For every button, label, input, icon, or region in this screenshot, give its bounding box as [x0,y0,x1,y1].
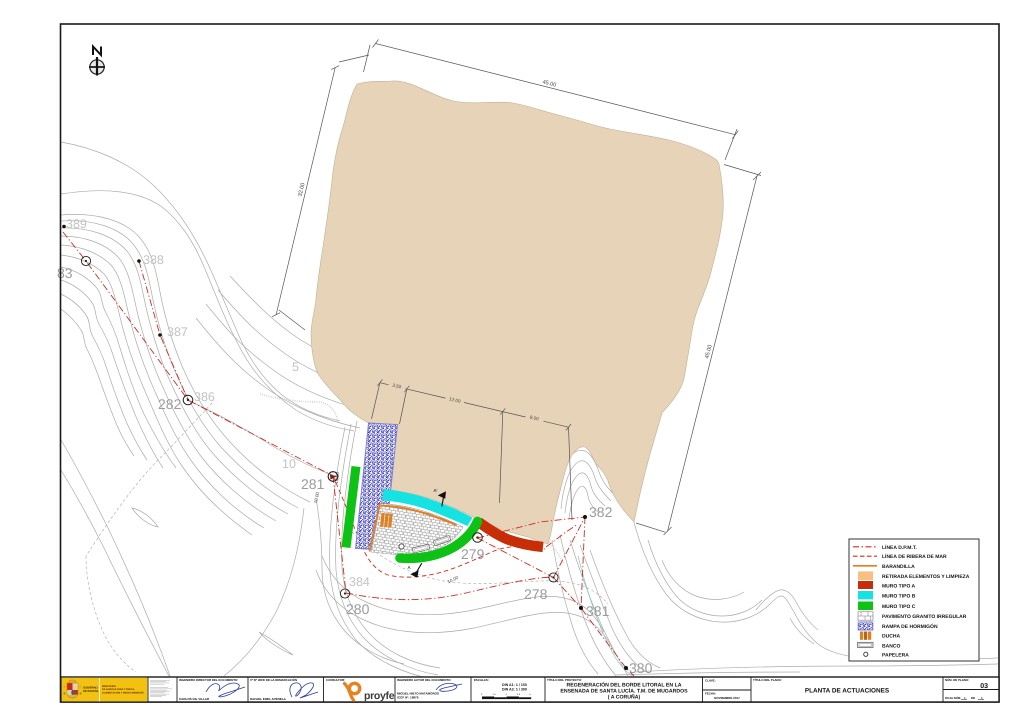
svg-text:ENSENADA DE SANTA LUCÍA. T.M.: ENSENADA DE SANTA LUCÍA. T.M. DE MUGARDO… [560,688,688,695]
svg-text:proyfe: proyfe [364,690,395,702]
svg-text:382: 382 [589,504,613,520]
svg-text:BANCO: BANCO [882,643,900,649]
svg-text:ICCP Nº: 19879: ICCP Nº: 19879 [397,696,419,700]
svg-text:282: 282 [158,396,182,412]
svg-text:DE: DE [971,696,975,700]
svg-text:NOVIEMBRE 2017: NOVIEMBRE 2017 [714,696,740,700]
svg-text:PLANTA DE ACTUACIONES: PLANTA DE ACTUACIONES [805,688,890,695]
svg-text:FECHA:: FECHA: [705,691,716,695]
svg-text:386: 386 [194,390,215,404]
svg-text:389: 389 [66,217,87,231]
svg-text:5: 5 [292,360,299,374]
svg-text:03: 03 [980,683,988,690]
svg-text:NÚM. DE PLANO:: NÚM. DE PLANO: [945,678,969,682]
svg-text:10: 10 [282,457,296,471]
svg-text:PAVIMENTO GRANITO IRREGULAR: PAVIMENTO GRANITO IRREGULAR [882,614,967,620]
svg-text:PAPELERA: PAPELERA [882,652,909,658]
svg-text:CARLOS GIL VILLAR: CARLOS GIL VILLAR [179,697,210,701]
svg-text:ESCALAS:: ESCALAS: [474,678,489,682]
svg-text:387: 387 [167,325,188,339]
svg-text:A': A' [434,488,438,493]
svg-text:DE ESPAÑA: DE ESPAÑA [83,689,99,693]
svg-text:REGENERACIÓN DEL BORDE LITORAL: REGENERACIÓN DEL BORDE LITORAL EN LA [567,682,682,689]
svg-text:381: 381 [586,603,610,619]
svg-text:DUCHA: DUCHA [882,634,900,640]
svg-text:RAMPA DE HORMIGÓN: RAMPA DE HORMIGÓN [882,623,938,630]
svg-text:TÍTULO DEL PLANO:: TÍTULO DEL PLANO: [753,678,782,682]
svg-text:380: 380 [629,660,653,676]
svg-text:HOJA NÚM.: HOJA NÚM. [945,696,961,700]
svg-text:RETIRADA ELEMENTOS Y LIMPIEZA: RETIRADA ELEMENTOS Y LIMPIEZA [882,574,970,580]
svg-text:LÍNEA D.P.M.T.: LÍNEA D.P.M.T. [882,544,917,551]
svg-text:MURO TIPO C: MURO TIPO C [882,604,916,610]
svg-text:280: 280 [346,601,370,617]
svg-text:83: 83 [57,265,73,281]
svg-text:279: 279 [461,546,485,562]
svg-text:281: 281 [301,476,325,492]
svg-text:TÍTULO DEL PROYECTO:: TÍTULO DEL PROYECTO: [547,678,582,682]
svg-text:MURO TIPO A: MURO TIPO A [882,583,916,589]
svg-text:388: 388 [143,253,164,267]
svg-text:Vº Bº JEFE DE LA DEMARCACIÓN: Vº Bº JEFE DE LA DEMARCACIÓN [250,678,297,682]
svg-text:384: 384 [349,575,370,589]
svg-text:MURO TIPO B: MURO TIPO B [882,593,916,599]
svg-text:278: 278 [524,586,548,602]
svg-text:ALIMENTACIÓN Y MEDIO AMBIENTE: ALIMENTACIÓN Y MEDIO AMBIENTE [102,690,144,694]
svg-text:RAFAEL EIMIL APENELA: RAFAEL EIMIL APENELA [250,697,287,701]
svg-text:CLAVE:: CLAVE: [705,679,716,683]
svg-text:BARANDILLA: BARANDILLA [882,564,915,570]
svg-text:INGENIERO AUTOR DEL DOCUMENTO:: INGENIERO AUTOR DEL DOCUMENTO: [397,678,451,682]
svg-text:INGENIERO DIRECTOR DEL DOCUMEN: INGENIERO DIRECTOR DEL DOCUMENTO: [179,678,238,682]
svg-text:( A CORUÑA): ( A CORUÑA) [608,694,641,701]
svg-text:DIN A1: 1 / 150: DIN A1: 1 / 150 [502,683,527,687]
svg-text:CONSULTOR:: CONSULTOR: [326,678,345,682]
svg-text:DIN A3: 1 / 300: DIN A3: 1 / 300 [502,688,527,692]
svg-text:LÍNEA DE RIBERA DE MAR: LÍNEA DE RIBERA DE MAR [882,553,947,560]
